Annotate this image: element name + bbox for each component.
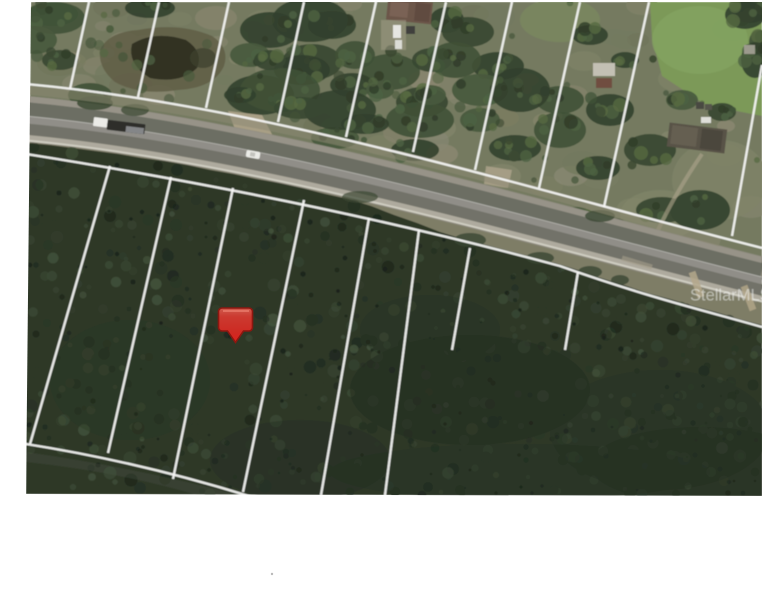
svg-text:StellarMLS: StellarMLS [690, 287, 762, 305]
